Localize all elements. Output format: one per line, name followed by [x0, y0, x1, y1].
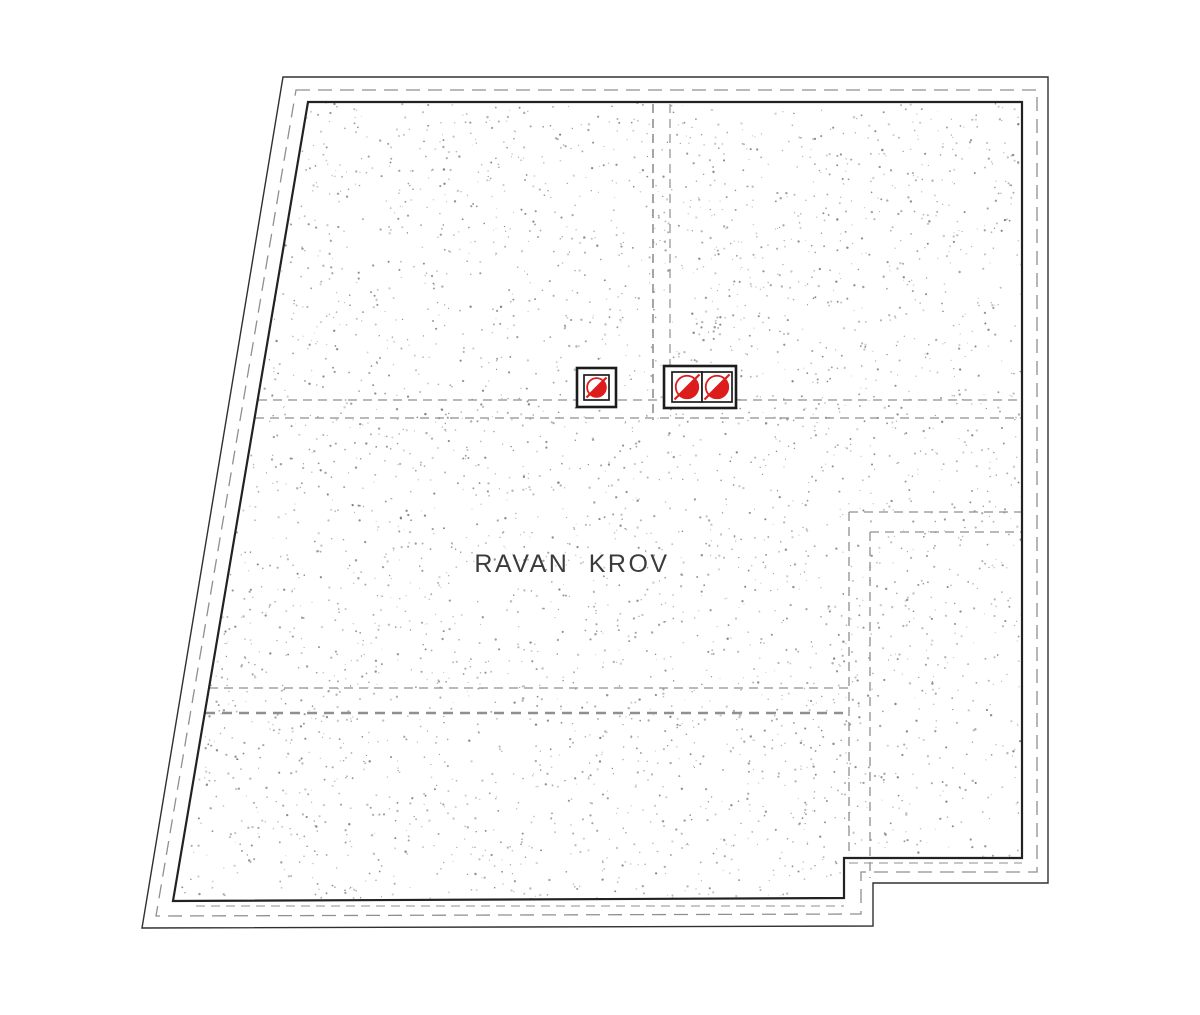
stipple-texture [181, 102, 1023, 900]
roof-plan-drawing: RAVAN KROV [0, 0, 1200, 1015]
roof-drain-icon [664, 366, 736, 408]
roof-inner-boundary [173, 102, 1022, 901]
roof-drain-icon [577, 368, 616, 407]
hidden-dashed-lines [196, 104, 1022, 906]
roof-label: RAVAN KROV [421, 549, 723, 579]
roof-plan-canvas [0, 0, 1200, 1015]
